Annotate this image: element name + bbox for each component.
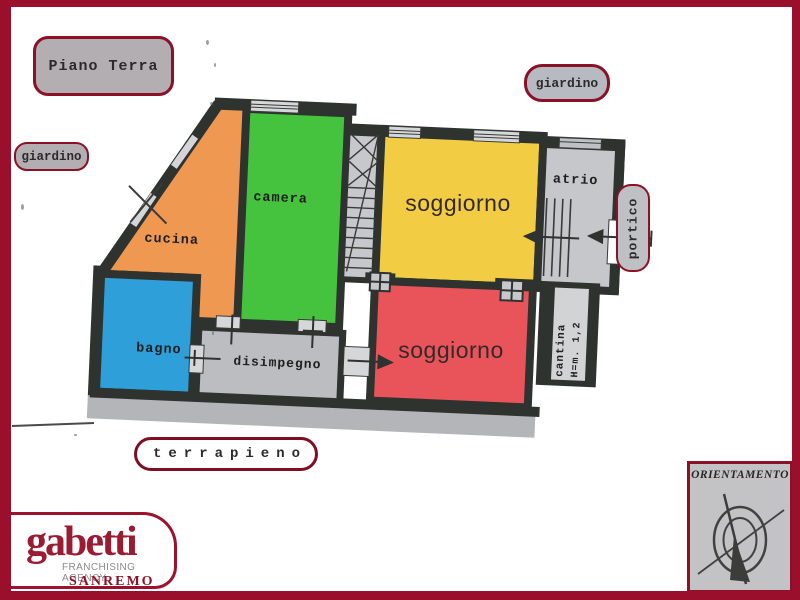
room-bagno xyxy=(94,274,197,396)
scan-speck xyxy=(214,63,216,67)
scan-speck xyxy=(210,102,213,105)
portico-badge: portico xyxy=(616,184,650,272)
label-bagno: bagno xyxy=(136,341,182,358)
orientation-box: ORIENTAMENTO xyxy=(687,461,793,593)
agency-brand: gabetti xyxy=(26,521,136,563)
label-camera: camera xyxy=(253,190,308,207)
scan-speck xyxy=(212,331,214,335)
ground-line xyxy=(12,423,94,426)
scan-speck xyxy=(21,204,24,210)
label-soggiorno-top: soggiorno xyxy=(405,190,511,216)
scan-speck xyxy=(206,40,209,45)
room-atrio xyxy=(537,142,621,291)
orientation-title: ORIENTAMENTO xyxy=(690,469,790,481)
terrapieno-badge: terrapieno xyxy=(134,437,318,471)
scan-speck xyxy=(74,434,77,436)
agency-city: SANREMO xyxy=(69,574,155,590)
garden-badge-top: giardino xyxy=(524,64,610,102)
label-cantina: cantina xyxy=(554,323,568,377)
room-camera xyxy=(235,109,348,327)
label-atrio: atrio xyxy=(553,172,599,189)
garden-left-text: giardino xyxy=(21,150,81,164)
floor-title-text: Piano Terra xyxy=(48,58,158,75)
compass-icon xyxy=(690,486,790,594)
label-cucina: cucina xyxy=(144,232,199,249)
garden-badge-left: giardino xyxy=(14,142,89,171)
portico-text: portico xyxy=(626,197,641,259)
agency-logo-box: gabetti FRANCHISING AGENCY SANREMO xyxy=(9,512,177,589)
label-soggiorno-bottom: soggiorno xyxy=(398,337,504,363)
scanned-floor-plan-page: camera cucina bagno disimpegno atrio can… xyxy=(0,0,800,600)
terrapieno-text: terrapieno xyxy=(153,446,307,462)
plan-rotated-group: camera cucina bagno disimpegno atrio can… xyxy=(87,93,657,443)
floor-title-badge: Piano Terra xyxy=(33,36,174,96)
garden-top-text: giardino xyxy=(536,76,598,91)
